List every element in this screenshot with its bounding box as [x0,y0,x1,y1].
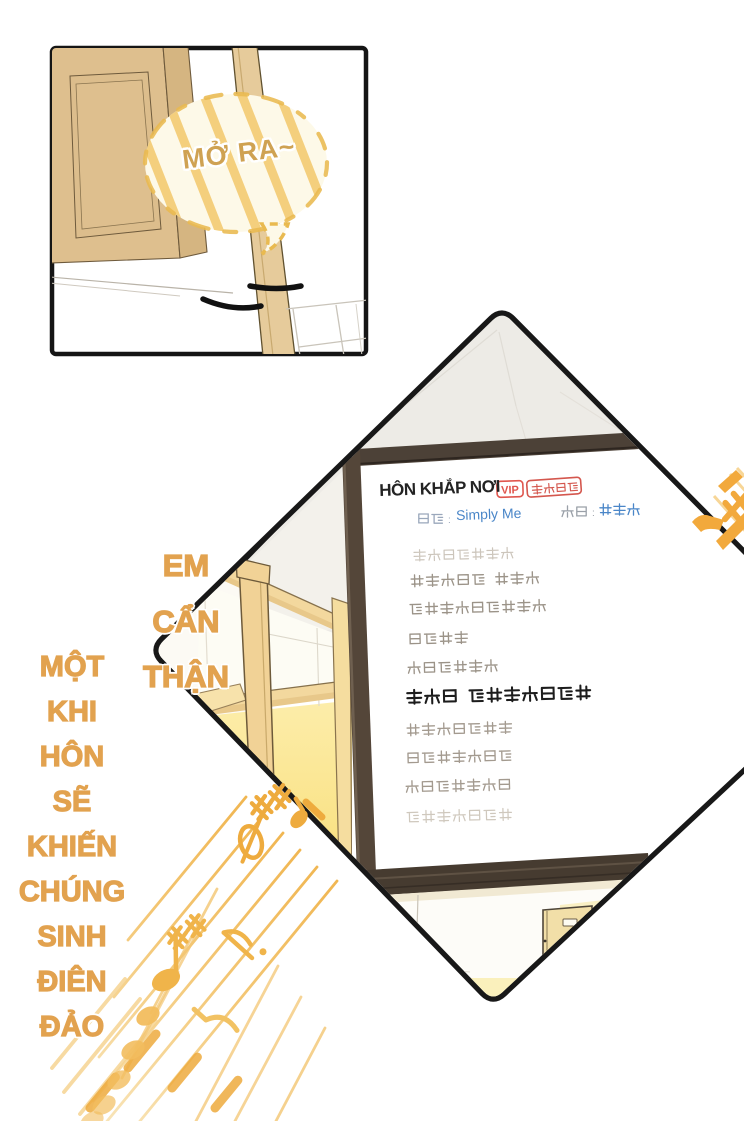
svg-text::: : [448,515,451,526]
svg-text::: : [592,508,595,519]
svg-text:VIP: VIP [501,484,519,497]
